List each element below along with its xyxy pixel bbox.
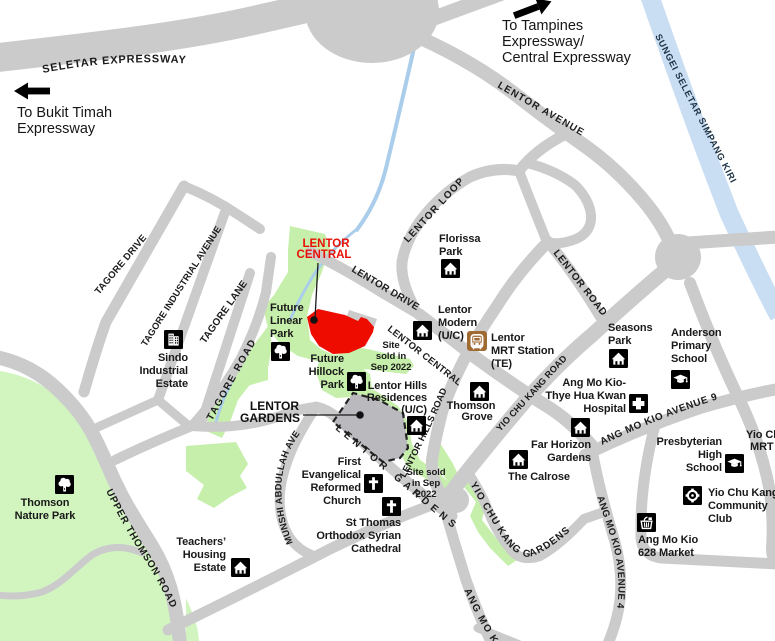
svg-text:Reformed: Reformed [310, 482, 361, 494]
svg-text:MRT Station: MRT Station [491, 345, 554, 357]
svg-text:Thye Hua Kwan: Thye Hua Kwan [545, 390, 626, 402]
svg-text:Expressway: Expressway [17, 121, 96, 137]
svg-text:The Calrose: The Calrose [508, 471, 570, 483]
svg-text:Central Expressway: Central Expressway [502, 50, 632, 66]
svg-text:MRT Sta: MRT Sta [750, 441, 775, 453]
svg-text:Ang Mo Kio: Ang Mo Kio [638, 534, 698, 546]
svg-text:(TE): (TE) [491, 358, 512, 370]
svg-text:Anderson: Anderson [671, 327, 722, 339]
svg-text:Thomson: Thomson [21, 497, 70, 509]
svg-text:Site sold: Site sold [406, 467, 445, 478]
svg-text:Ang Mo Kio-: Ang Mo Kio- [562, 377, 626, 389]
svg-text:GARDENS: GARDENS [240, 411, 300, 425]
svg-text:Modern: Modern [438, 317, 478, 329]
svg-text:Park: Park [321, 379, 345, 391]
svg-text:2022: 2022 [416, 489, 437, 500]
svg-text:School: School [686, 462, 722, 474]
svg-text:628 Market: 628 Market [638, 547, 694, 559]
svg-text:Site: Site [382, 340, 399, 351]
svg-text:Seasons: Seasons [608, 322, 653, 334]
svg-text:(U/C): (U/C) [438, 330, 464, 342]
svg-text:Park: Park [608, 335, 632, 347]
svg-text:First: First [338, 456, 362, 468]
svg-text:Grove: Grove [461, 411, 492, 423]
svg-text:Gardens: Gardens [547, 452, 591, 464]
svg-text:Far Horizon: Far Horizon [531, 439, 591, 451]
svg-text:Yio Chu Kang: Yio Chu Kang [708, 487, 775, 499]
svg-text:(U/C): (U/C) [401, 404, 427, 416]
svg-text:Park: Park [439, 246, 463, 258]
svg-text:Club: Club [708, 513, 732, 525]
svg-text:Sindo: Sindo [158, 352, 188, 364]
svg-text:Primary: Primary [671, 340, 712, 352]
svg-text:Estate: Estate [156, 378, 188, 390]
svg-text:CENTRAL: CENTRAL [297, 249, 352, 261]
svg-text:Sep 2022: Sep 2022 [371, 362, 412, 373]
svg-text:St Thomas: St Thomas [346, 517, 401, 529]
svg-text:Future: Future [310, 353, 344, 365]
svg-text:Estate: Estate [194, 562, 226, 574]
svg-text:Florissa: Florissa [439, 233, 481, 245]
svg-text:Future: Future [270, 302, 304, 314]
svg-text:Lentor: Lentor [438, 304, 472, 316]
svg-text:Hillock: Hillock [309, 366, 345, 378]
svg-text:Park: Park [270, 328, 294, 340]
svg-text:School: School [671, 353, 707, 365]
svg-text:Expressway/: Expressway/ [502, 34, 585, 50]
svg-text:Community: Community [708, 500, 769, 512]
svg-text:Lentor Hills: Lentor Hills [368, 380, 427, 392]
svg-text:Hospital: Hospital [583, 403, 626, 415]
svg-text:To Tampines: To Tampines [502, 18, 583, 34]
svg-text:To Bukit Timah: To Bukit Timah [17, 105, 112, 121]
svg-text:Teachers’: Teachers’ [176, 536, 226, 548]
svg-text:Presbyterian: Presbyterian [657, 436, 723, 448]
svg-text:Orthodox Syrian: Orthodox Syrian [316, 530, 401, 542]
svg-text:Housing: Housing [183, 549, 226, 561]
svg-text:High: High [698, 449, 722, 461]
svg-text:Church: Church [323, 495, 361, 507]
svg-text:Residences: Residences [367, 392, 427, 404]
svg-text:Lentor: Lentor [491, 332, 525, 344]
svg-text:Yio Chu K: Yio Chu K [746, 429, 775, 441]
svg-text:sold in: sold in [376, 351, 406, 362]
svg-text:in Sep: in Sep [412, 478, 440, 489]
svg-text:Nature Park: Nature Park [15, 510, 77, 522]
svg-text:Linear: Linear [270, 315, 303, 327]
svg-text:Evangelical: Evangelical [302, 469, 361, 481]
svg-text:Cathedral: Cathedral [351, 543, 401, 555]
svg-text:Industrial: Industrial [139, 365, 188, 377]
